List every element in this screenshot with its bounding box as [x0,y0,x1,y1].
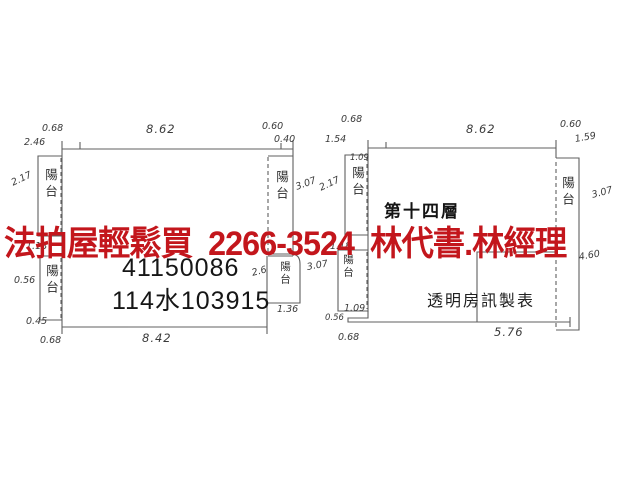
balcony-label: 陽台 [41,168,60,201]
water-meter-number: 114水103915 [112,281,270,317]
dim-label: 0.68 [42,123,63,134]
dim-label: 0.60 [262,121,283,132]
advertising-watermark: 法拍屋輕鬆買 2266-3524 林代書.林經理 [4,216,566,265]
dim-label: 0.56 [14,275,35,286]
balcony-label: 陽台 [348,166,367,199]
dim-label-bottom-width: 8.42 [142,331,172,345]
dim-label: 1.09 [344,303,365,314]
dim-label: 0.56 [325,313,344,323]
publisher-label: 透明房訊製表 [427,287,535,311]
dim-label-top-width: 8.62 [146,122,176,136]
balcony-label: 陽台 [272,170,291,203]
dim-label: 2.46 [24,137,45,148]
balcony-label: 陽台 [558,176,577,209]
dim-label: 0.60 [560,119,581,130]
scanned-floor-plan-document: 0.68 2.46 8.62 0.60 0.40 2.17 1.18 0.56 … [0,0,640,480]
dim-label: 0.68 [40,335,61,346]
dim-label: 1.54 [325,134,346,145]
dim-label: 0.45 [26,316,47,327]
dim-label: 0.68 [338,332,359,343]
balcony-label: 陽台 [42,264,61,297]
dim-label: 0.68 [341,114,362,125]
dim-label: 1.36 [277,304,298,315]
dim-label-bottom-width: 5.76 [494,325,524,339]
dim-label: 0.40 [274,134,295,145]
dim-label: 1.09 [350,153,369,163]
dim-label-top-width: 8.62 [466,122,496,136]
